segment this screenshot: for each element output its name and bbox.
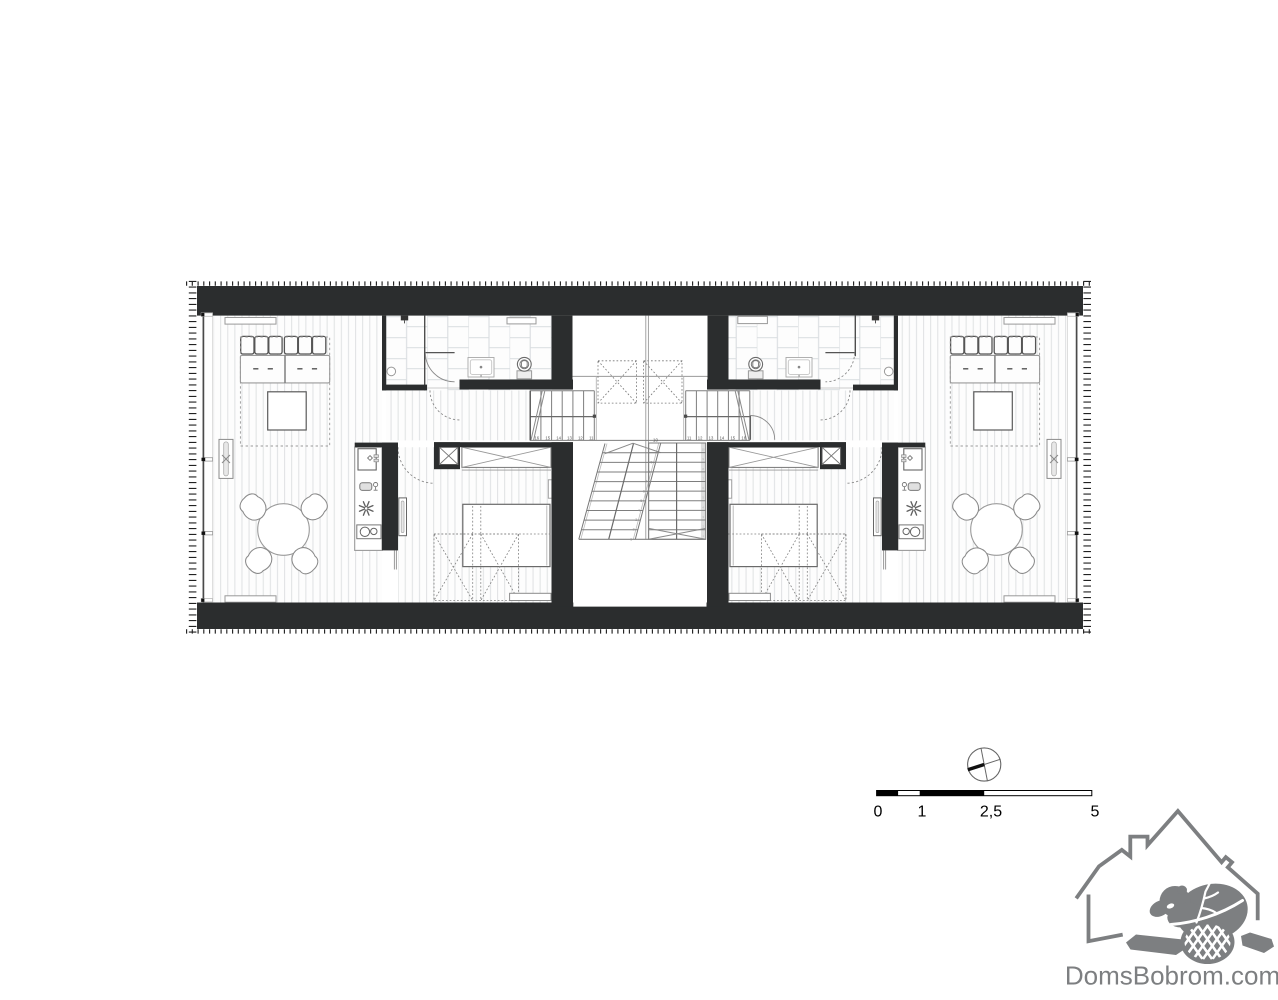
svg-text:14: 14 (720, 436, 725, 441)
svg-text:12: 12 (698, 436, 703, 441)
svg-text:3: 3 (635, 518, 637, 522)
svg-text:0: 0 (874, 804, 883, 821)
svg-text:15: 15 (730, 436, 735, 441)
svg-text:13: 13 (709, 436, 714, 441)
svg-text:10: 10 (653, 438, 658, 443)
svg-text:14: 14 (556, 436, 561, 441)
svg-text:6: 6 (643, 489, 645, 493)
svg-text:5: 5 (1091, 804, 1100, 821)
svg-text:12: 12 (578, 436, 583, 441)
svg-text:11: 11 (589, 436, 594, 441)
svg-text:13: 13 (567, 436, 572, 441)
svg-text:7: 7 (645, 480, 647, 484)
svg-text:16: 16 (741, 436, 746, 441)
svg-text:16: 16 (534, 436, 539, 441)
svg-text:2,5: 2,5 (980, 804, 1002, 821)
svg-text:2: 2 (633, 528, 635, 532)
svg-text:1: 1 (918, 804, 927, 821)
svg-text:DomsBobrom.com: DomsBobrom.com (1065, 961, 1278, 991)
svg-text:1: 1 (630, 537, 632, 541)
svg-text:5: 5 (640, 499, 642, 503)
svg-text:4: 4 (638, 509, 640, 513)
svg-text:10: 10 (702, 448, 706, 452)
svg-text:15: 15 (545, 436, 550, 441)
svg-text:11: 11 (687, 436, 692, 441)
